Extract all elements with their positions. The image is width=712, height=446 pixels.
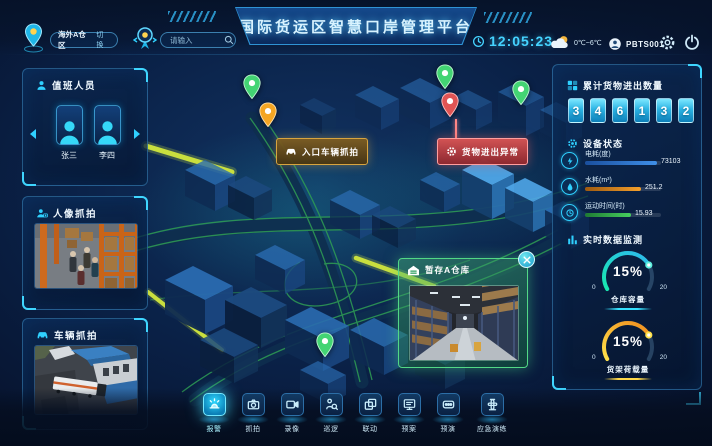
person-icon [36,80,47,91]
member-name: 张三 [61,150,77,161]
monitor-document-icon [402,397,417,412]
car-icon [36,330,49,340]
progress-bar [585,161,661,165]
alarm-icon [207,397,222,412]
toolbar-label: 抓拍 [246,424,261,434]
toolbar-label: 预演 [441,424,456,434]
entry-capture-text: 入口车辆抓拍 [302,146,359,158]
face-capture-panel: 人像抓拍 [22,196,148,310]
temperature-range: 0℃~6℃ [574,39,602,47]
user-icon [608,37,622,51]
gauge-label: 仓库容量 [611,294,645,305]
search-bar[interactable] [160,32,236,48]
next-arrow-icon[interactable] [134,129,140,139]
warehouse-icon [407,265,420,276]
power-icon[interactable] [684,34,700,50]
electricity-icon [561,152,578,169]
gauge-underline [604,378,652,380]
gauge-value: 15% [581,264,675,279]
region-name: 海外A仓区 [58,29,92,51]
region-switcher[interactable]: 海外A仓区 切换 [50,32,118,48]
digit-tile: 3 [656,98,672,123]
map-pin-green-3[interactable] [511,80,531,106]
search-input[interactable] [168,35,220,46]
face-capture-title: 人像抓拍 [53,206,97,220]
map-pin-green-2[interactable] [435,64,455,90]
toolbar-label: 巡逻 [324,424,339,434]
page-title: 国际货运区智慧口岸管理平台 [239,16,473,37]
search-icon[interactable] [224,35,234,45]
deco-stripes-right [484,12,532,23]
device-value: 15.93 [635,210,653,217]
device-label: 运动时间(时) [585,201,625,211]
badge-icon [133,24,157,54]
toolbar-label: 应急演练 [477,424,507,434]
cargo-count-title: 累计货物进出数量 [583,79,663,92]
map-pin-red[interactable] [440,92,460,118]
clock-icon [561,204,578,221]
duty-member-card[interactable]: 张三 [54,105,84,161]
user-account[interactable]: PBTS001 [608,37,664,51]
prev-arrow-icon[interactable] [30,129,36,139]
map-pin-green-4[interactable] [315,332,335,358]
gear-icon [446,146,457,157]
warehouse-popup-title: 暂存A仓库 [425,264,470,276]
gear-icon [567,138,578,149]
device-value: 251.2 [645,184,663,191]
device-row-runtime: 运动时间(时) 15.93 [559,201,697,225]
shelf-load-gauge: 15% 0 20 货架荷载量 [581,317,675,380]
digit-tile: 4 [590,98,606,123]
bottom-toolbar: 报警 抓拍 录像 巡逻 联动 [0,388,712,446]
avatar [94,105,121,145]
digit-tile: 1 [634,98,650,123]
gauge-min: 0 [592,354,596,361]
toolbar-label: 预案 [402,424,417,434]
device-label: 电耗(度) [585,149,611,159]
cargo-alert-text: 货物进出异常 [462,146,519,158]
toolbar-label: 联动 [363,424,378,434]
cargo-alert-label[interactable]: 货物进出异常 [437,138,528,165]
device-value: 73103 [661,158,680,165]
stats-panel: 累计货物进出数量 3 4 6 1 3 2 设备状态 电耗(度) 73103 [552,64,702,390]
face-capture-photo[interactable] [34,223,138,289]
duty-personnel-panel: 值班人员 张三 李四 [22,68,148,186]
hydrant-icon [485,397,500,412]
deco-stripes-left [168,11,216,22]
header: 海外A仓区 切换 国际货运区智慧口岸管理平台 12:05:23 0 [0,0,712,56]
avatar [56,105,83,145]
camera-icon [246,397,261,412]
duty-panel-title: 值班人员 [52,78,96,92]
digit-tile: 2 [678,98,694,123]
digit-tile: 6 [612,98,628,123]
time-display: 12:05:23 [489,33,553,49]
water-drop-icon [561,178,578,195]
clock-icon [472,35,485,48]
gauge-max: 20 [660,284,667,291]
patrol-person-icon [324,397,339,412]
person-camera-icon [36,208,48,219]
weather: 0℃~6℃ [549,35,602,50]
realtime-title: 实时数据监测 [583,233,643,246]
close-icon[interactable] [518,251,535,268]
entry-capture-label[interactable]: 入口车辆抓拍 [276,138,368,165]
clock: 12:05:23 [472,33,553,49]
smart-port-dashboard: 入口车辆抓拍 货物进出异常 暂存A仓库 [0,0,712,446]
warehouse-popup[interactable]: 暂存A仓库 [398,258,528,368]
duty-member-card[interactable]: 李四 [92,105,122,161]
device-row-water: 水耗(m³) 251.2 [559,175,697,199]
gauge-value: 15% [581,334,675,349]
title-banner: 国际货运区智慧口岸管理平台 [235,7,477,45]
video-camera-icon [285,397,300,412]
bar-chart-icon [567,234,578,245]
weather-icon [549,35,571,50]
gauge-max: 20 [660,354,667,361]
device-label: 水耗(m³) [585,175,612,185]
warehouse-photo[interactable] [409,285,519,361]
toolbar-item-emergency-drill[interactable]: 应急演练 [466,393,518,434]
cargo-count-digits: 3 4 6 1 3 2 [568,98,694,123]
gauge-underline [604,308,652,310]
vehicle-capture-title: 车辆抓拍 [54,328,98,342]
car-icon [285,147,297,156]
warehouse-capacity-gauge: 15% 0 20 仓库容量 [581,247,675,310]
digit-tile: 3 [568,98,584,123]
alert-connector [455,119,457,138]
location-pin-icon [22,22,45,53]
header-divider [0,54,712,55]
gauge-min: 0 [592,284,596,291]
cargo-boxes-icon [567,80,578,91]
map-pin-green-1[interactable] [242,74,262,100]
toolbar-label: 录像 [285,424,300,434]
toolbar-label: 报警 [207,424,222,434]
map-pin-orange[interactable] [258,102,278,128]
layers-icon [363,397,378,412]
gauge-label: 货架荷载量 [607,364,650,375]
device-row-electric: 电耗(度) 73103 [559,149,697,173]
member-name: 李四 [99,150,115,161]
dots-panel-icon [441,397,456,412]
region-switch-button[interactable]: 切换 [96,30,110,50]
settings-gear-icon[interactable] [659,34,676,51]
